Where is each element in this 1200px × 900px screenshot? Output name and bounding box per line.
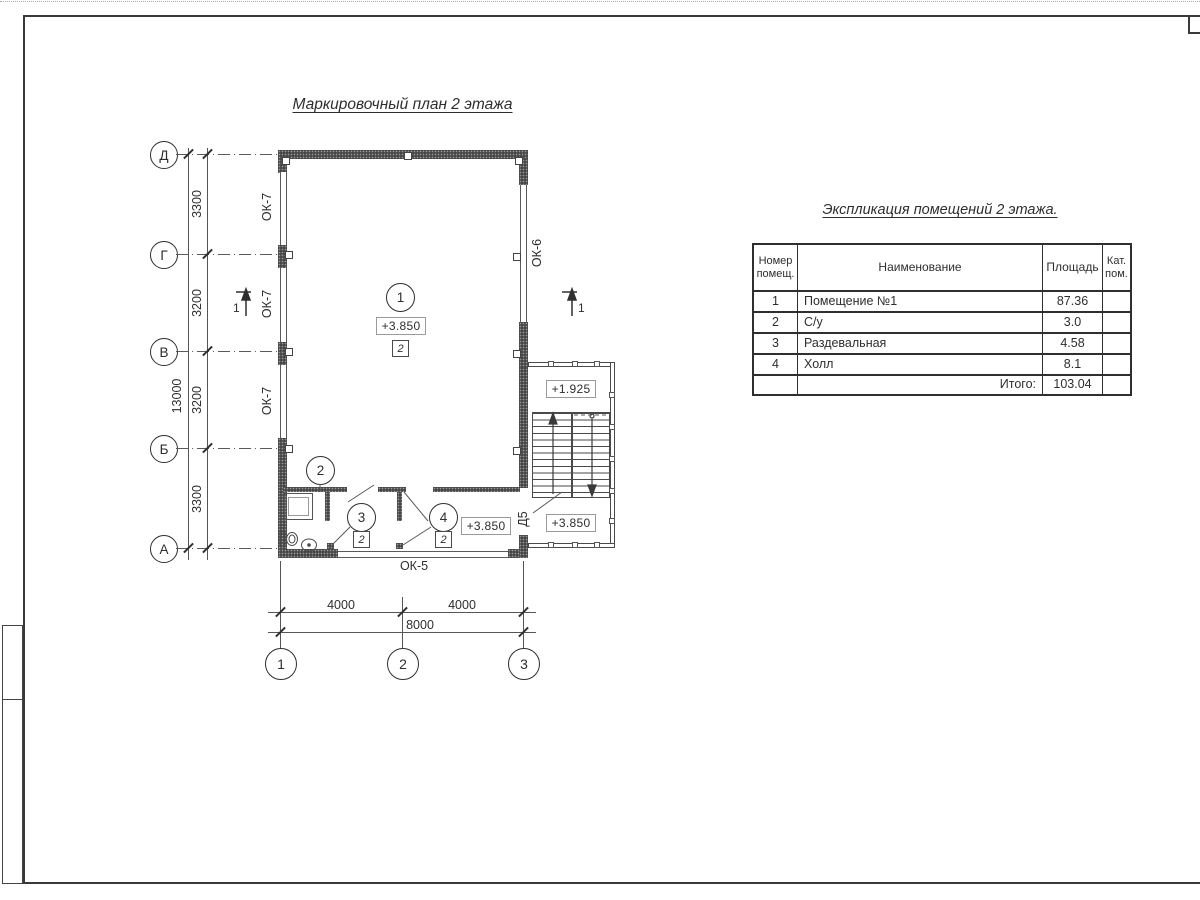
cell-room-cat <box>1102 311 1130 332</box>
drawing-sheet: Маркировочный план 2 этажа <box>0 0 1200 900</box>
cell-room-area: 4.58 <box>1042 332 1102 353</box>
total-value: 103.04 <box>1042 374 1102 394</box>
col-header-cat: Кат. пом. <box>1102 245 1130 290</box>
cell-room-area: 87.36 <box>1042 290 1102 311</box>
explication-table: Номер помещ. Наименование Площадь Кат. п… <box>752 243 1132 396</box>
frame-margin-box <box>2 699 23 884</box>
cell-room-name: Холл <box>797 353 1042 374</box>
cell-room-name: С/у <box>797 311 1042 332</box>
cell-total-empty <box>754 374 797 394</box>
cell-room-cat <box>1102 290 1130 311</box>
cell-room-num: 2 <box>754 311 797 332</box>
col-header-num: Номер помещ. <box>754 245 797 290</box>
cell-room-area: 3.0 <box>1042 311 1102 332</box>
cell-room-cat <box>1102 332 1130 353</box>
plan-linework <box>0 0 700 700</box>
col-header-area: Площадь <box>1042 245 1102 290</box>
cell-total-cat <box>1102 374 1130 394</box>
table-title: Экспликация помещений 2 этажа. <box>752 202 1128 218</box>
cell-room-num: 1 <box>754 290 797 311</box>
cell-room-name: Раздевальная <box>797 332 1042 353</box>
total-label: Итого: <box>797 374 1042 394</box>
col-header-name: Наименование <box>797 245 1042 290</box>
cell-room-name: Помещение №1 <box>797 290 1042 311</box>
cell-room-num: 4 <box>754 353 797 374</box>
frame-corner-box <box>1188 15 1200 34</box>
floor-plan: Д Г В Б А 3300 3200 3200 3300 13000 ОК-7… <box>0 0 700 700</box>
cell-room-num: 3 <box>754 332 797 353</box>
cell-room-cat <box>1102 353 1130 374</box>
cell-room-area: 8.1 <box>1042 353 1102 374</box>
